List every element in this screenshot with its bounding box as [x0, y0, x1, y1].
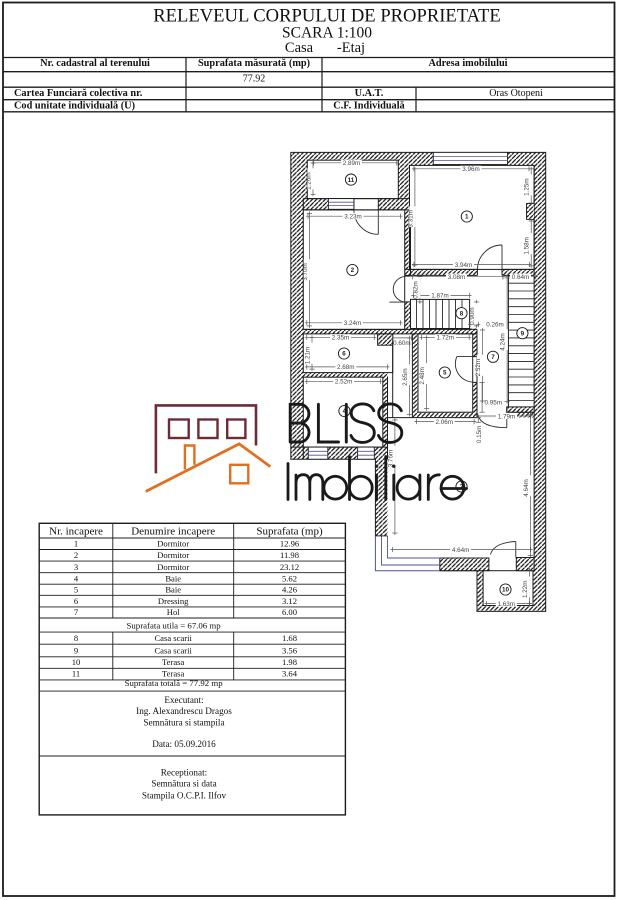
- svg-text:8: 8: [74, 633, 78, 643]
- svg-text:Suprafata (mp): Suprafata (mp): [256, 525, 323, 537]
- svg-text:2.06m: 2.06m: [436, 419, 454, 426]
- svg-text:6: 6: [74, 596, 79, 606]
- svg-text:9: 9: [521, 330, 525, 337]
- svg-text:1: 1: [465, 214, 469, 221]
- svg-text:1.22m: 1.22m: [522, 580, 529, 598]
- svg-text:Hol: Hol: [167, 607, 181, 617]
- svg-text:3.24m: 3.24m: [344, 320, 362, 327]
- svg-text:1.79m: 1.79m: [498, 413, 516, 420]
- svg-text:Suprafata totală = 77.92 mp: Suprafata totală = 77.92 mp: [125, 678, 224, 688]
- svg-text:Receptionat:: Receptionat:: [161, 768, 207, 778]
- svg-text:2.52m: 2.52m: [475, 359, 482, 377]
- svg-text:0.64m: 0.64m: [512, 274, 530, 281]
- svg-text:Executant:: Executant:: [164, 695, 203, 705]
- svg-text:0.60m: 0.60m: [393, 340, 411, 347]
- svg-text:23.12: 23.12: [280, 562, 299, 572]
- svg-text:1.63m: 1.63m: [498, 601, 516, 608]
- svg-text:11.98: 11.98: [280, 550, 299, 560]
- svg-text:5.62: 5.62: [282, 573, 297, 583]
- svg-text:Suprafata utila = 67.06 mp: Suprafata utila = 67.06 mp: [127, 621, 222, 631]
- svg-text:0.90m: 0.90m: [469, 307, 476, 325]
- svg-text:1.21m: 1.21m: [304, 347, 311, 365]
- svg-text:3.56: 3.56: [282, 645, 298, 655]
- svg-text:Semnătura si data: Semnătura si data: [151, 779, 216, 789]
- svg-text:Dormitor: Dormitor: [157, 539, 189, 549]
- svg-text:4.64m: 4.64m: [523, 479, 530, 497]
- svg-text:0.95m: 0.95m: [485, 400, 503, 407]
- svg-text:3.23m: 3.23m: [344, 214, 362, 221]
- svg-text:3.94m: 3.94m: [455, 262, 473, 269]
- svg-text:4.26: 4.26: [282, 585, 298, 595]
- svg-text:Baie: Baie: [165, 585, 181, 595]
- svg-text:Denumire incapere: Denumire incapere: [131, 525, 215, 537]
- svg-text:Casa scarii: Casa scarii: [154, 645, 192, 655]
- svg-text:5: 5: [443, 370, 447, 377]
- svg-text:77.92: 77.92: [243, 74, 266, 85]
- svg-text:3.96m: 3.96m: [462, 166, 480, 173]
- svg-text:3.12: 3.12: [282, 596, 297, 606]
- svg-text:Dressing: Dressing: [158, 596, 189, 606]
- svg-text:Cod unitate individuală (U): Cod unitate individuală (U): [14, 100, 135, 111]
- svg-text:Baie: Baie: [165, 573, 181, 583]
- svg-text:3.31m: 3.31m: [407, 210, 414, 228]
- svg-text:0.15m: 0.15m: [476, 426, 483, 444]
- svg-text:-Etaj: -Etaj: [337, 40, 365, 56]
- svg-text:1.87m: 1.87m: [431, 293, 449, 300]
- svg-text:1.72m: 1.72m: [437, 335, 455, 342]
- svg-text:Casa scarii: Casa scarii: [154, 633, 192, 643]
- svg-text:2: 2: [74, 550, 78, 560]
- svg-text:3.70m: 3.70m: [302, 263, 309, 281]
- svg-text:5: 5: [74, 585, 78, 595]
- svg-text:Nr. incapere: Nr. incapere: [49, 525, 103, 537]
- svg-text:Dormitor: Dormitor: [157, 550, 189, 560]
- svg-text:1.26m: 1.26m: [305, 172, 312, 190]
- svg-text:Oras Otopeni: Oras Otopeni: [489, 88, 543, 99]
- svg-text:Dormitor: Dormitor: [157, 562, 189, 572]
- svg-text:2.65m: 2.65m: [402, 368, 409, 386]
- svg-text:SCARA 1:100: SCARA 1:100: [282, 25, 372, 42]
- svg-text:4.64m: 4.64m: [452, 547, 470, 554]
- svg-text:Terasa: Terasa: [162, 657, 184, 667]
- svg-text:2.89m: 2.89m: [343, 160, 361, 167]
- svg-text:0.82m: 0.82m: [412, 281, 419, 299]
- svg-text:2: 2: [351, 267, 355, 274]
- svg-text:C.F. Individuală: C.F. Individuală: [333, 100, 404, 111]
- svg-text:Ing. Alexandrescu Dragos: Ing. Alexandrescu Dragos: [136, 706, 232, 716]
- svg-text:7: 7: [74, 607, 79, 617]
- svg-text:Stampila O.C.P.I. Ilfov: Stampila O.C.P.I. Ilfov: [142, 790, 227, 800]
- svg-text:6: 6: [342, 351, 346, 358]
- svg-text:Semnătura si stampila: Semnătura si stampila: [143, 717, 224, 727]
- svg-text:RELEVEUL CORPULUI DE PROPRIETA: RELEVEUL CORPULUI DE PROPRIETATE: [153, 6, 500, 27]
- svg-text:Nr. cadastral al terenului: Nr. cadastral al terenului: [40, 58, 150, 69]
- svg-text:1.25m: 1.25m: [524, 178, 531, 196]
- svg-text:Data: 05.09.2016: Data: 05.09.2016: [152, 739, 216, 749]
- svg-text:Cartea Funciară colectiva nr.: Cartea Funciară colectiva nr.: [14, 88, 143, 99]
- svg-text:0.26m: 0.26m: [486, 322, 504, 329]
- svg-text:2.68m: 2.68m: [337, 364, 355, 371]
- svg-text:1.68: 1.68: [282, 633, 297, 643]
- svg-text:4.24m: 4.24m: [500, 333, 507, 351]
- svg-text:1: 1: [74, 539, 78, 549]
- svg-text:U.A.T.: U.A.T.: [355, 88, 384, 99]
- svg-text:1.98: 1.98: [282, 657, 297, 667]
- svg-text:11: 11: [348, 177, 355, 184]
- svg-text:7: 7: [491, 354, 495, 361]
- svg-text:2.35m: 2.35m: [332, 335, 350, 342]
- svg-text:6.00: 6.00: [282, 607, 297, 617]
- svg-text:3.08m: 3.08m: [448, 274, 466, 281]
- svg-text:2.48m: 2.48m: [419, 367, 426, 385]
- svg-text:10: 10: [502, 587, 510, 594]
- svg-text:Adresa imobilului: Adresa imobilului: [428, 58, 507, 69]
- svg-text:3.64: 3.64: [282, 669, 298, 679]
- svg-text:Terasa: Terasa: [162, 669, 184, 679]
- svg-text:9: 9: [74, 645, 78, 655]
- svg-text:1.58m: 1.58m: [524, 237, 531, 255]
- svg-text:3: 3: [74, 562, 78, 572]
- svg-text:8: 8: [460, 310, 464, 317]
- svg-text:12.96: 12.96: [280, 539, 300, 549]
- svg-text:11: 11: [72, 669, 80, 679]
- svg-text:Casa: Casa: [285, 40, 314, 56]
- svg-text:10: 10: [72, 657, 81, 667]
- svg-text:2.52m: 2.52m: [335, 379, 353, 386]
- svg-text:Suprafata măsurată (mp): Suprafata măsurată (mp): [198, 58, 310, 69]
- svg-text:4: 4: [74, 573, 79, 583]
